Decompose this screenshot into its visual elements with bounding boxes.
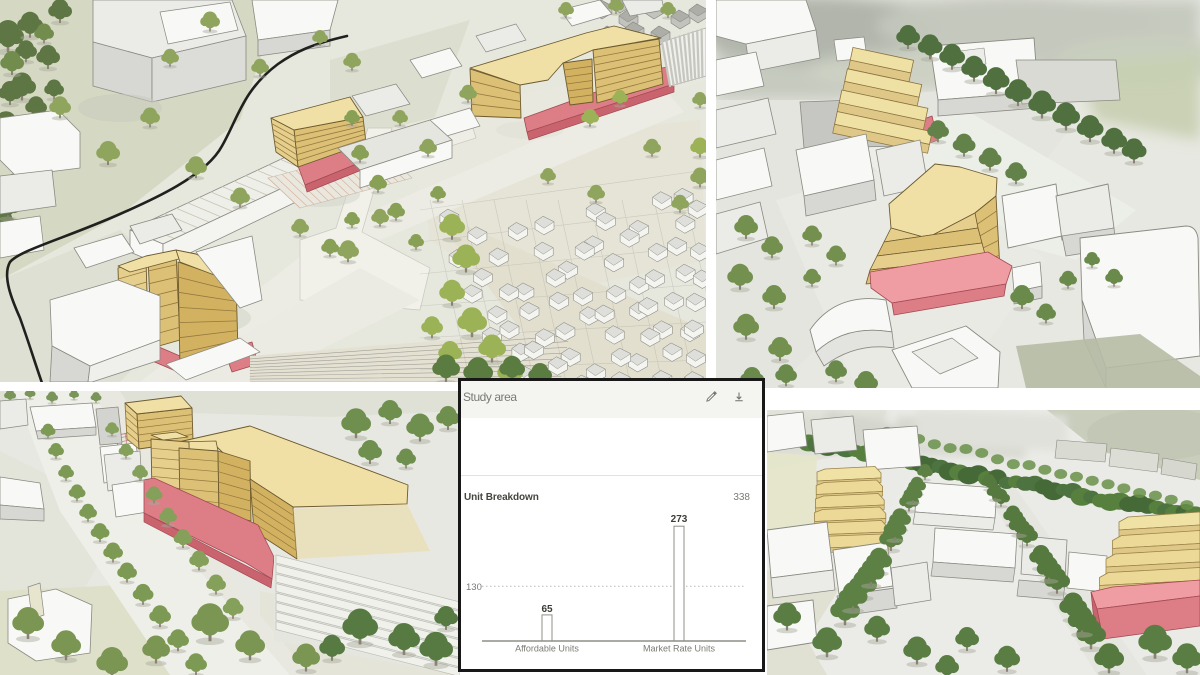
- svg-text:65: 65: [541, 604, 553, 615]
- svg-text:130: 130: [466, 582, 482, 593]
- svg-text:Market Rate Units: Market Rate Units: [643, 644, 716, 654]
- svg-text:273: 273: [671, 514, 688, 525]
- svg-text:Affordable Units: Affordable Units: [515, 644, 579, 654]
